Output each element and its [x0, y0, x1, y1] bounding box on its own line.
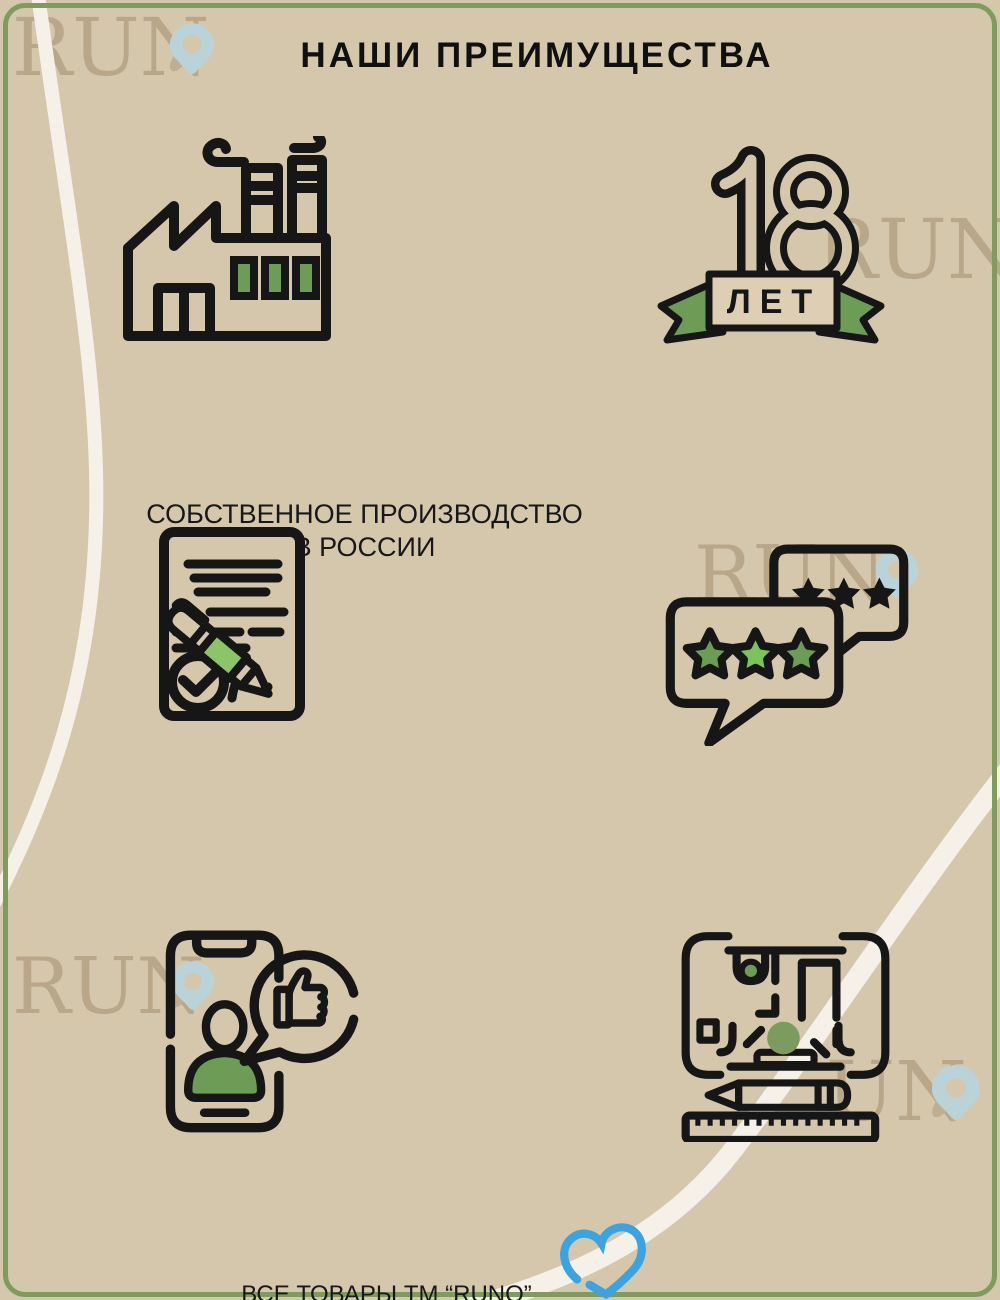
advantage-certificate: ВСЕ ТОВАРЫ ТМ “RUNO” СООТВЕТСТВУЮТ ТРЕБО…: [138, 518, 366, 730]
reviews-icon: [652, 543, 920, 746]
advantage-years: ЛЕТ 18 НА РЫНКЕ: [645, 140, 897, 350]
years-badge-icon: ЛЕТ 18: [645, 140, 897, 350]
content-layer: НАШИ ПРЕИМУЩЕСТВА: [0, 0, 1000, 1300]
badge-unit-text: ЛЕТ: [727, 283, 821, 321]
heart-icon: [553, 1218, 662, 1300]
advantage-furniture-plan: ПОСТОЯННОЕ ПОПОЛНЕНИЕ КОЛЛЕКЦИИ МЕБЕЛИ: [648, 924, 923, 1142]
factory-icon: [112, 136, 340, 346]
advantage-customers: БОЛЕЕ 3500 ДОВОЛЬНЫХ ПОКУПАТЕЛЕЙ: [148, 918, 363, 1143]
certificate-icon: [138, 518, 366, 730]
advantage-factory: СОБСТВЕННОЕ ПРОИЗВОДСТВО В РОССИИ: [112, 136, 340, 346]
advantage-reviews: ТЫСЯЧИ ПОЛОЖИТЕЛЬНЫХ ОТЗЫВОВ: [652, 543, 920, 746]
infographic-canvas: RUN RUNO RUN RUN UN НАШИ ПРЕИМУЩЕСТВА: [0, 0, 1000, 1300]
page-title: НАШИ ПРЕИМУЩЕСТВА: [74, 36, 1000, 76]
furniture-plan-icon: [648, 924, 923, 1142]
customers-icon: [148, 918, 363, 1143]
